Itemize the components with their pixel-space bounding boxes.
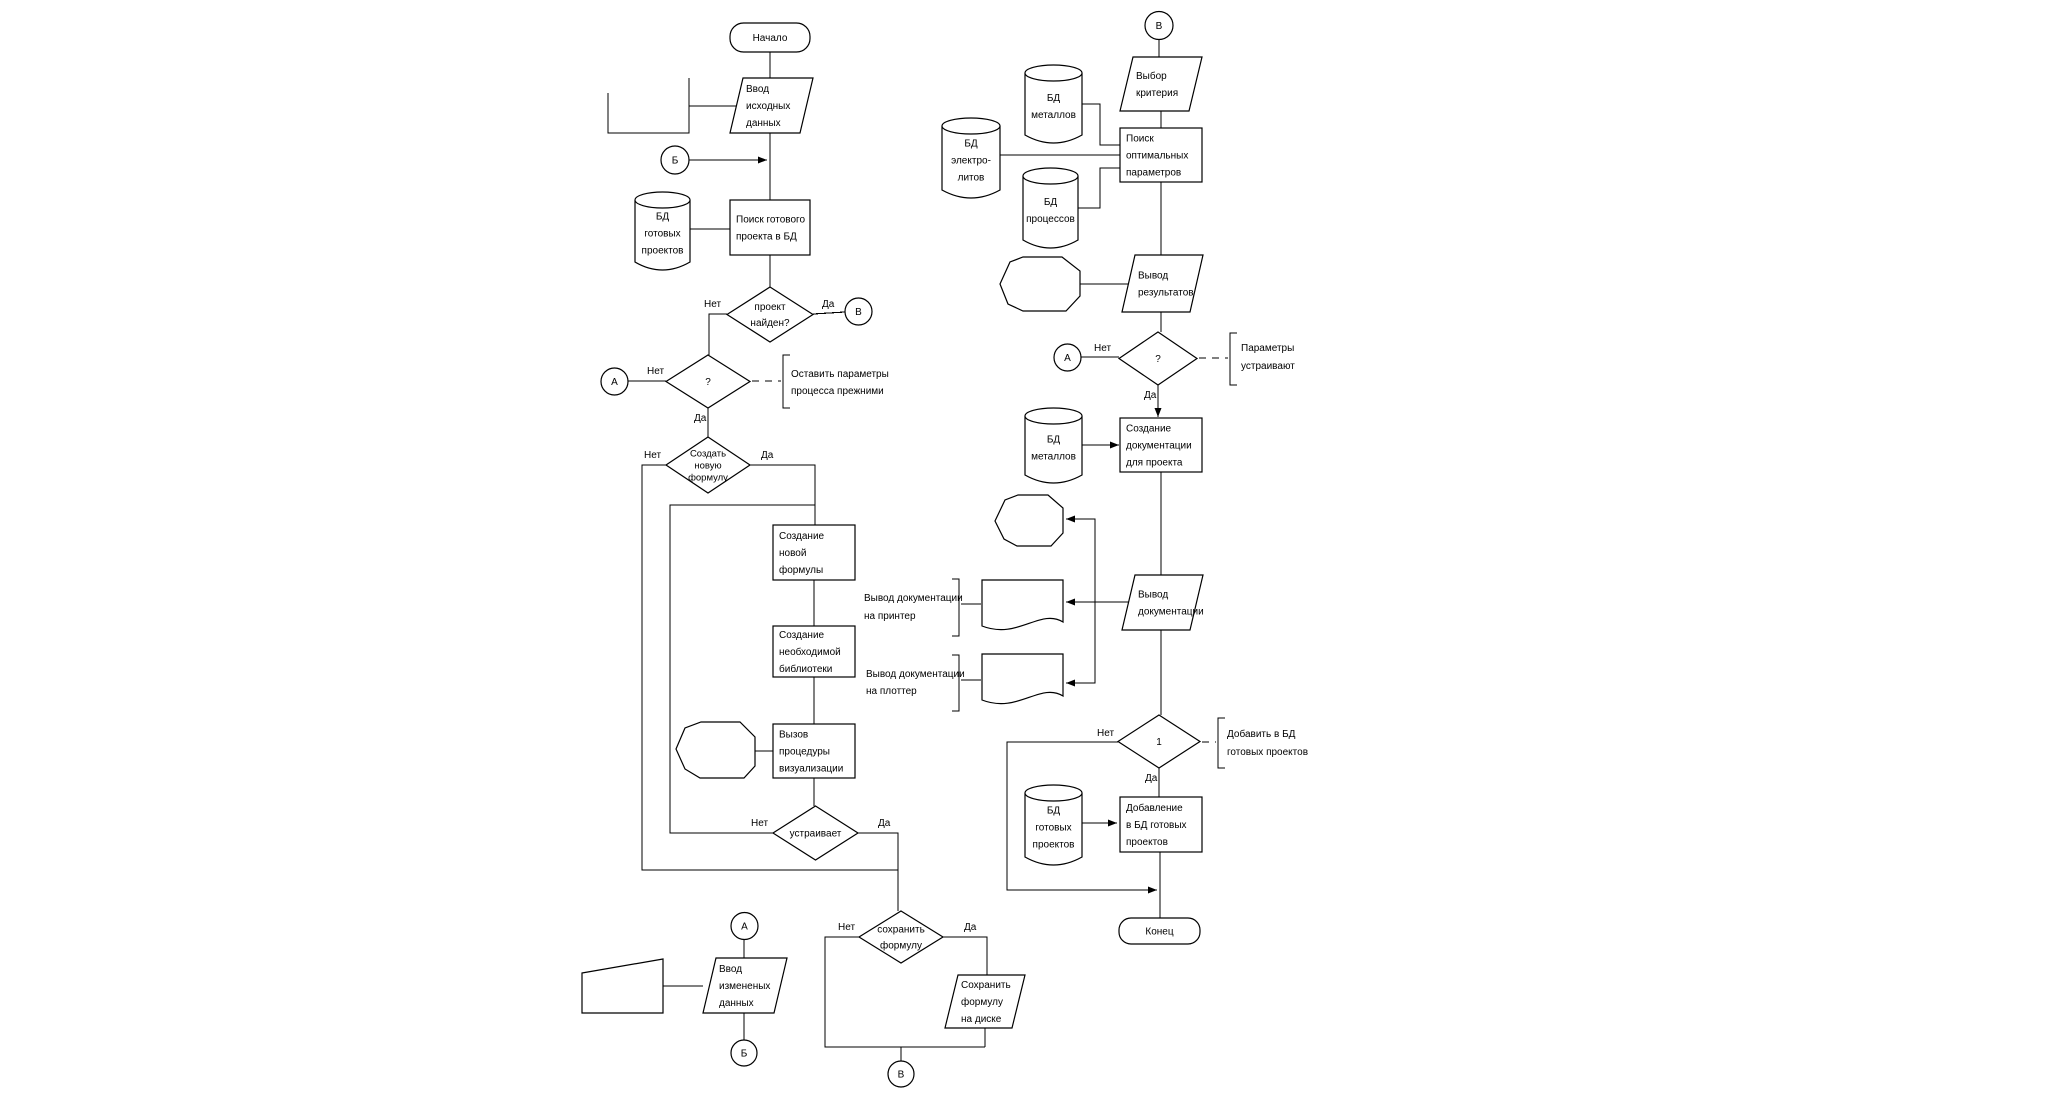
flow-label: Да	[964, 922, 977, 933]
arrowhead-icon	[758, 157, 767, 164]
flow-label: Нет	[644, 450, 661, 461]
node-label-creation-library: Создание	[779, 630, 825, 641]
node-label-db-ready-projects-right: готовых	[1035, 823, 1071, 834]
flow-line	[750, 465, 815, 525]
flow-label: Вывод документации	[866, 669, 965, 680]
output-results: Выводрезультатов	[1122, 255, 1203, 312]
node-label-connector-v-left: В	[855, 307, 862, 318]
db-processes: БДпроцессов	[1023, 168, 1078, 248]
edge-37	[1066, 599, 1129, 606]
flow-label: Да	[1144, 390, 1157, 401]
call-visualization: Вызовпроцедурывизуализации	[773, 724, 855, 778]
node-label-create-project-docs: документации	[1126, 441, 1192, 452]
flow-line	[642, 465, 898, 870]
create-new-formula-decision: Создатьновуюформулу	[666, 437, 750, 493]
flow-line	[943, 937, 987, 975]
flow-label: на плоттер	[866, 686, 917, 697]
question-right-decision: ?	[1119, 332, 1197, 385]
node-label-creation-new-formula: формулы	[779, 564, 823, 576]
search-optimal-params: Поископтимальныхпараметров	[1120, 128, 1202, 182]
connector-a-left: А	[601, 368, 628, 395]
flow-label: устраивают	[1241, 361, 1295, 372]
connector-a-right: А	[1054, 344, 1081, 371]
node-label-db-ready-projects-right: БД	[1047, 806, 1061, 817]
flow-line	[1066, 519, 1095, 602]
node-label-input-changed-data: измененых	[719, 981, 770, 992]
node-label-db-processes: процессов	[1026, 214, 1075, 225]
display-left	[676, 722, 755, 778]
node-label-save-formula-disk: формулу	[961, 996, 1003, 1008]
flow-line	[1082, 104, 1120, 145]
db-electrolytes: БДэлектро-литов	[942, 118, 1000, 198]
db-metals-top: БДметаллов	[1025, 65, 1082, 143]
node-label-connector-b-bottom: Б	[741, 1049, 748, 1060]
question-left-decision: ?	[666, 355, 750, 408]
connector-a-bottom: А	[731, 913, 758, 940]
io-shape	[1122, 575, 1203, 630]
node-label-connector-a-right: А	[1064, 353, 1071, 364]
cylinder-top	[1025, 408, 1082, 424]
flow-label: Вывод документации	[864, 593, 963, 604]
cylinder-top	[1025, 785, 1082, 801]
edge-29	[1078, 168, 1120, 208]
edge-7	[709, 314, 727, 355]
io-shape	[1120, 57, 1202, 111]
connector-b-left: Б	[661, 146, 689, 174]
flow-label: Нет	[1094, 343, 1111, 354]
node-label-input-initial-data: Ввод	[746, 84, 769, 95]
flowchart-canvas: НачалоВводисходныхданныхББДготовыхпроект…	[0, 0, 2049, 1106]
comment-bracket	[952, 579, 959, 636]
node-label-project-found-decision: проект	[754, 302, 786, 313]
flow-label: процесса прежними	[791, 386, 884, 397]
flow-line	[1078, 168, 1120, 208]
decision-shape	[859, 911, 943, 963]
node-label-db-electrolytes: БД	[964, 139, 978, 150]
edge-39	[1066, 602, 1095, 687]
node-label-creation-new-formula: Создание	[779, 531, 825, 542]
node-label-output-docs: Вывод	[1138, 590, 1168, 601]
flow-label: Нет	[838, 922, 855, 933]
satisfies-decision: устраивает	[773, 806, 858, 860]
flow-line	[858, 833, 898, 911]
comment-bracket	[952, 655, 959, 711]
node-label-add-decision: 1	[1156, 737, 1162, 748]
arrowhead-icon	[1148, 887, 1157, 894]
node-label-question-right-decision: ?	[1155, 354, 1161, 365]
node-label-save-formula-disk: на диске	[961, 1014, 1002, 1025]
open-shape	[608, 78, 689, 133]
connector-v-left: В	[845, 298, 872, 325]
edge-38	[1066, 516, 1095, 603]
node-label-db-processes: БД	[1044, 197, 1058, 208]
flow-label: Да	[761, 450, 774, 461]
node-label-end: Конец	[1145, 927, 1173, 938]
node-label-db-electrolytes: литов	[958, 173, 985, 184]
input-initial-data: Вводисходныхданных	[730, 78, 813, 133]
flow-label: Да	[1145, 773, 1158, 784]
node-label-create-project-docs: Создание	[1126, 424, 1172, 435]
node-label-input-initial-data: исходных	[746, 101, 790, 112]
connector-v-bottom: В	[888, 1061, 914, 1087]
node-label-question-left-decision: ?	[705, 377, 711, 388]
flow-line	[813, 312, 845, 314]
document-shape	[982, 654, 1063, 704]
flow-label: Нет	[704, 299, 721, 310]
node-label-creation-new-formula: новой	[779, 548, 806, 559]
node-label-choose-criteria: критерия	[1136, 88, 1178, 99]
node-label-project-found-decision: найден?	[750, 318, 790, 329]
node-label-connector-v-top: В	[1156, 21, 1163, 32]
comment-bracket	[1218, 718, 1225, 768]
node-label-connector-a-bottom: А	[741, 922, 748, 933]
display-shape	[676, 722, 755, 778]
project-found-decision: проектнайден?	[727, 287, 813, 342]
db-metals-mid: БДметаллов	[1025, 408, 1082, 483]
node-label-db-ready-projects-left: проектов	[642, 246, 684, 257]
start: Начало	[730, 23, 810, 52]
node-label-choose-criteria: Выбор	[1136, 70, 1167, 82]
node-label-search-ready-project: Поиск готового	[736, 215, 805, 226]
flow-label: Да	[822, 299, 835, 310]
flow-label: Да	[694, 413, 707, 424]
node-label-db-ready-projects-left: готовых	[644, 229, 680, 240]
node-label-db-metals-top: БД	[1047, 93, 1061, 104]
input-changed-data: Вводизмененыхданных	[703, 958, 787, 1013]
node-label-db-ready-projects-left: БД	[656, 212, 670, 223]
node-label-start: Начало	[753, 33, 788, 44]
manual-input-trapezoid	[582, 959, 663, 1013]
node-label-create-new-formula-decision: формулу	[688, 473, 728, 484]
save-formula-decision: сохранитьформулу	[859, 911, 943, 963]
arrowhead-icon	[1155, 408, 1162, 417]
node-label-creation-library: библиотеки	[779, 663, 832, 675]
flow-label: Параметры	[1241, 343, 1294, 354]
document-shape	[982, 580, 1063, 630]
cylinder-body	[1025, 416, 1082, 483]
choose-criteria: Выборкритерия	[1120, 57, 1202, 111]
node-label-db-ready-projects-right: проектов	[1033, 840, 1075, 851]
edge-10	[750, 465, 815, 525]
node-label-add-to-db: Добавление	[1126, 802, 1183, 814]
decision-shape	[727, 287, 813, 342]
node-label-db-electrolytes: электро-	[951, 156, 991, 167]
cylinder-body	[1025, 73, 1082, 143]
node-label-connector-a-left: А	[611, 377, 618, 388]
add-decision: 1	[1118, 715, 1200, 768]
db-ready-projects-right: БДготовыхпроектов	[1025, 785, 1082, 865]
node-label-call-visualization: процедуры	[779, 747, 830, 758]
node-label-save-formula-decision: формулу	[880, 940, 922, 952]
create-project-docs: Созданиедокументациидля проекта	[1120, 418, 1202, 472]
flow-line	[1066, 602, 1095, 683]
cylinder-top	[942, 118, 1000, 134]
flow-label: Оставить параметры	[791, 369, 889, 380]
edge-35	[1082, 442, 1119, 449]
document-plotter	[982, 654, 1063, 704]
node-label-add-to-db: в БД готовых	[1126, 820, 1187, 831]
cylinder-top	[1023, 168, 1078, 184]
end: Конец	[1119, 918, 1200, 944]
flow-label: Нет	[647, 366, 664, 377]
node-label-db-metals-top: металлов	[1031, 110, 1076, 121]
edge-2	[689, 157, 767, 164]
arrowhead-icon	[1108, 820, 1117, 827]
arrowhead-icon	[1066, 516, 1075, 523]
node-label-call-visualization: Вызов	[779, 730, 808, 741]
flow-label: Нет	[751, 818, 768, 829]
node-label-input-changed-data: данных	[719, 998, 754, 1009]
node-label-search-optimal-params: Поиск	[1126, 134, 1154, 145]
node-label-input-initial-data: данных	[746, 118, 781, 129]
node-label-db-metals-mid: металлов	[1031, 452, 1076, 463]
flow-label: Нет	[1097, 728, 1114, 739]
arrowhead-icon	[1066, 599, 1075, 606]
creation-library: Созданиенеобходимойбиблиотеки	[773, 626, 855, 677]
edge-6	[813, 312, 845, 314]
node-label-create-project-docs: для проекта	[1126, 458, 1183, 469]
node-label-search-ready-project: проекта в БД	[736, 232, 797, 243]
output-docs: Выводдокументации	[1122, 575, 1204, 630]
node-label-db-metals-mid: БД	[1047, 435, 1061, 446]
node-label-call-visualization: визуализации	[779, 764, 843, 775]
arrowhead-icon	[1110, 442, 1119, 449]
comment-bracket	[1230, 333, 1237, 385]
comment-bracket	[783, 355, 790, 408]
flow-label: Добавить в БД	[1227, 728, 1296, 740]
node-label-output-docs: документации	[1138, 607, 1204, 618]
connector-b-bottom: Б	[731, 1040, 757, 1066]
node-label-output-results: результатов	[1138, 288, 1194, 299]
flow-line	[709, 314, 727, 355]
display-top-right	[1000, 257, 1080, 311]
display-shape	[995, 495, 1063, 546]
io-shape	[1122, 255, 1203, 312]
db-ready-projects-left: БДготовыхпроектов	[635, 192, 690, 270]
flow-label: Да	[878, 818, 891, 829]
open-rect-shape	[608, 78, 689, 133]
node-label-create-new-formula-decision: Создать	[690, 449, 726, 460]
edge-17	[858, 833, 898, 911]
display-shape	[1000, 257, 1080, 311]
creation-new-formula: Созданиеновойформулы	[773, 525, 855, 580]
display-mid-right	[995, 495, 1063, 546]
node-label-output-results: Вывод	[1138, 271, 1168, 282]
process-shape	[730, 200, 810, 255]
save-formula-disk: Сохранитьформулуна диске	[945, 975, 1025, 1028]
flow-label: готовых проектов	[1227, 747, 1308, 758]
flow-label: на принтер	[864, 611, 916, 622]
cylinder-body	[1023, 176, 1078, 248]
node-label-save-formula-decision: сохранить	[877, 925, 925, 936]
node-label-connector-b-left: Б	[672, 156, 679, 167]
node-label-search-optimal-params: параметров	[1126, 168, 1181, 179]
search-ready-project: Поиск готовогопроекта в БД	[730, 200, 810, 255]
add-to-db: Добавлениев БД готовыхпроектов	[1120, 797, 1202, 852]
edge-19	[943, 937, 987, 975]
edge-43	[1082, 820, 1117, 827]
edge-27	[1082, 104, 1120, 145]
cylinder-top	[635, 192, 690, 208]
document-printer	[982, 580, 1063, 630]
node-label-create-new-formula-decision: новую	[694, 461, 721, 472]
node-label-input-changed-data: Ввод	[719, 964, 742, 975]
edge-11	[642, 465, 898, 870]
node-label-connector-v-bottom: В	[898, 1070, 905, 1081]
node-label-creation-library: необходимой	[779, 646, 841, 658]
cylinder-top	[1025, 65, 1082, 81]
node-label-save-formula-disk: Сохранить	[961, 980, 1011, 991]
node-label-add-to-db: проектов	[1126, 837, 1168, 848]
node-label-satisfies-decision: устраивает	[790, 829, 842, 840]
arrowhead-icon	[1066, 680, 1075, 687]
node-label-search-optimal-params: оптимальных	[1126, 151, 1188, 162]
manual-input-shape	[582, 959, 663, 1013]
connector-v-top: В	[1145, 12, 1173, 40]
